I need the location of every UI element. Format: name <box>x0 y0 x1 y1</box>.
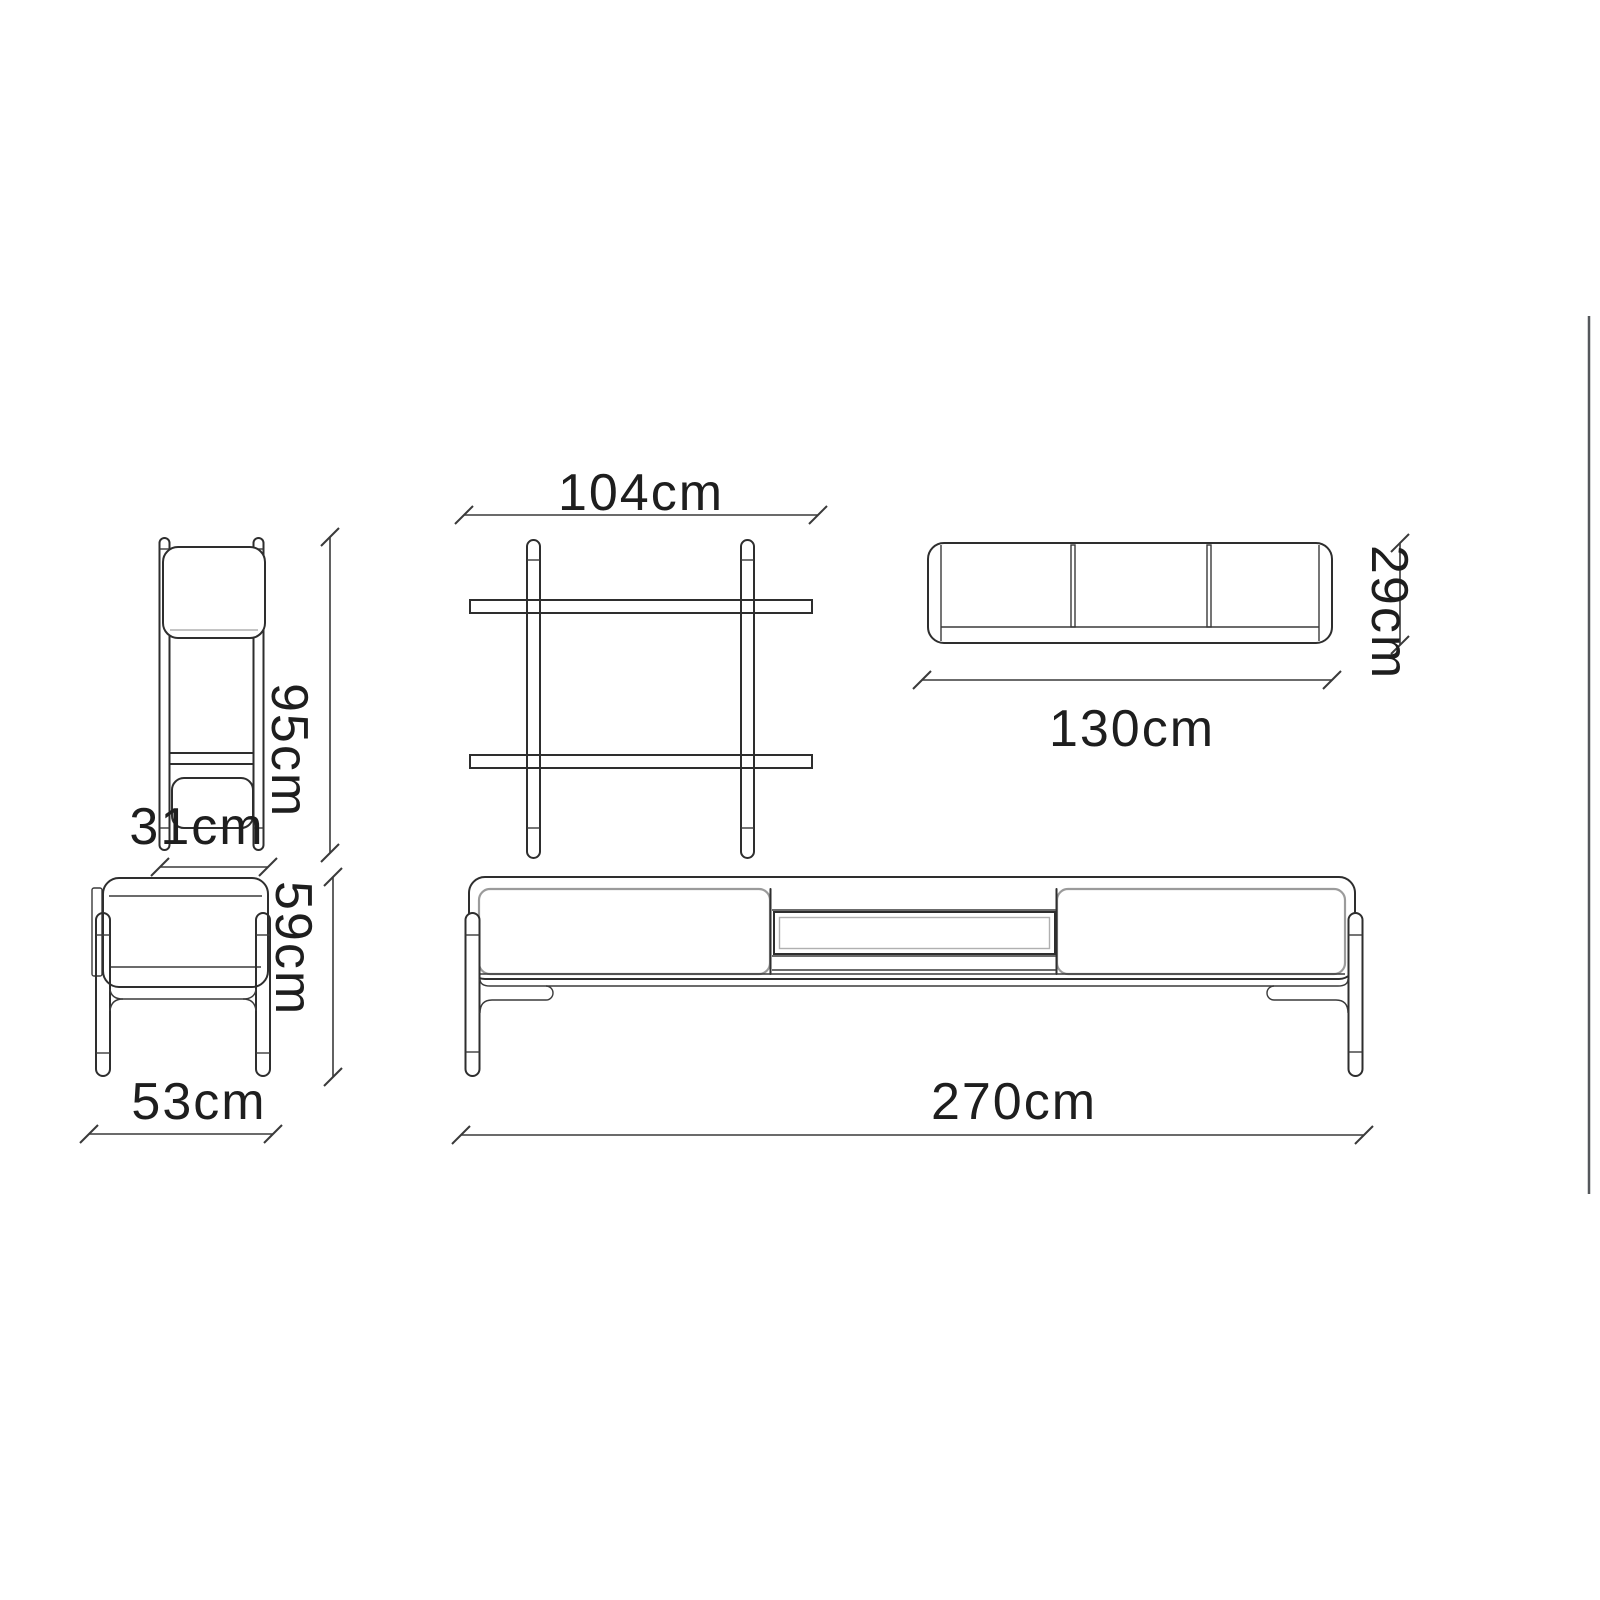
wall-shelf-front-view <box>928 543 1332 643</box>
tv-front-right-hook <box>1267 986 1348 1013</box>
dimension-wall-shelf-width: 130cm <box>913 671 1341 758</box>
dimension-wall-shelf-height: 29cm <box>1360 534 1418 680</box>
dimension-tv-front-width: 270cm <box>452 1073 1373 1144</box>
tv-front-body <box>469 877 1355 979</box>
dimension-shelf-side-depth: 31cm <box>129 798 277 876</box>
dimension-shelf-side-height: 95cm <box>260 528 339 862</box>
dimension-label-130cm: 130cm <box>1049 700 1215 758</box>
tv-front-rail <box>480 979 1348 986</box>
shelf-front-upper-shelf <box>470 600 812 613</box>
dimension-label-29cm: 29cm <box>1360 545 1418 680</box>
shelf-side-top-box <box>163 547 265 638</box>
dimension-shelf-front-width: 104cm <box>455 464 827 524</box>
technical-drawing-page: 104cm 95cm 31cm 130cm 29cm <box>0 0 1600 1600</box>
furniture-dimension-drawing: 104cm 95cm 31cm 130cm 29cm <box>0 0 1600 1600</box>
shelf-front-right-post <box>741 540 754 858</box>
dimension-tv-side-depth: 53cm <box>80 1073 282 1143</box>
dimension-label-59cm: 59cm <box>264 881 322 1016</box>
dimension-label-270cm: 270cm <box>931 1073 1097 1131</box>
dimension-label-104cm: 104cm <box>558 464 724 522</box>
wall-shelf-body <box>928 543 1332 643</box>
shelf-front-left-post <box>527 540 540 858</box>
dimension-label-53cm: 53cm <box>131 1073 266 1131</box>
shelf-side-middle-shelf <box>170 753 254 764</box>
tv-stand-front-view <box>466 877 1363 1076</box>
tv-stand-side-view <box>92 878 270 1076</box>
dimension-tv-side-height: 59cm <box>264 868 342 1086</box>
tv-side-rail <box>110 999 256 1011</box>
tv-side-body <box>103 878 268 987</box>
shelf-unit-front-view <box>470 540 812 858</box>
tv-side-rail-fillets <box>110 989 256 999</box>
tv-front-left-hook <box>480 986 553 1013</box>
dimension-label-31cm: 31cm <box>129 798 264 856</box>
shelf-front-lower-shelf <box>470 755 812 768</box>
dimension-label-95cm: 95cm <box>260 683 318 818</box>
